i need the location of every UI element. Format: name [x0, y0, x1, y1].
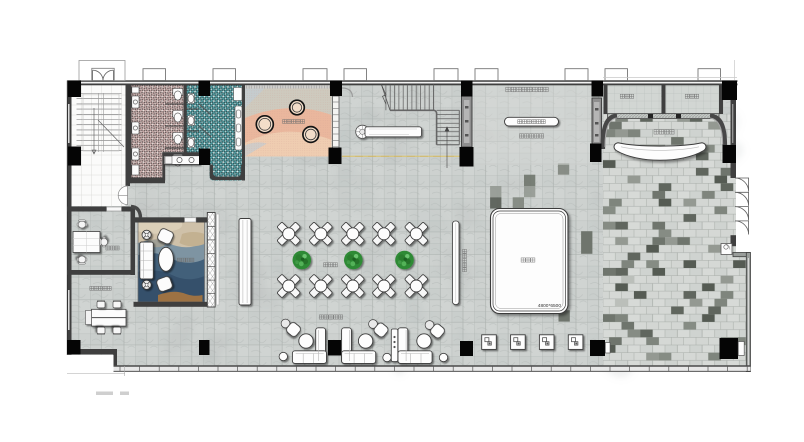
svg-text:4800*6500: 4800*6500: [538, 303, 562, 309]
